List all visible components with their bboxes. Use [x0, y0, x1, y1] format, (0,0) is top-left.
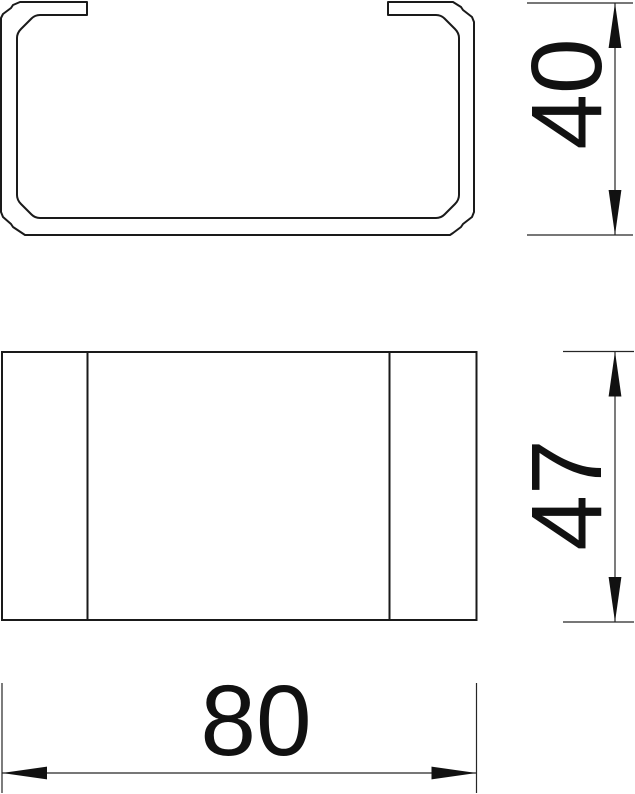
profile-view — [1, 2, 474, 235]
front-view-outline — [2, 352, 477, 620]
dimension-80-label: 80 — [200, 665, 311, 777]
dimension-47-label: 47 — [511, 439, 623, 550]
dimension-47-arrow-up — [609, 352, 622, 397]
dimension-80-arrow-left — [2, 767, 47, 780]
dimension-80-arrow-right — [432, 767, 477, 780]
dimension-40-label: 40 — [511, 38, 623, 149]
dimension-47-arrow-down — [609, 577, 622, 622]
dimension-40-arrow-down — [609, 190, 622, 235]
dimension-drawing-canvas: 40 47 80 — [0, 0, 635, 794]
technical-drawing-page: 40 47 80 — [0, 0, 635, 794]
front-view — [2, 352, 477, 620]
profile-outline — [1, 2, 474, 235]
